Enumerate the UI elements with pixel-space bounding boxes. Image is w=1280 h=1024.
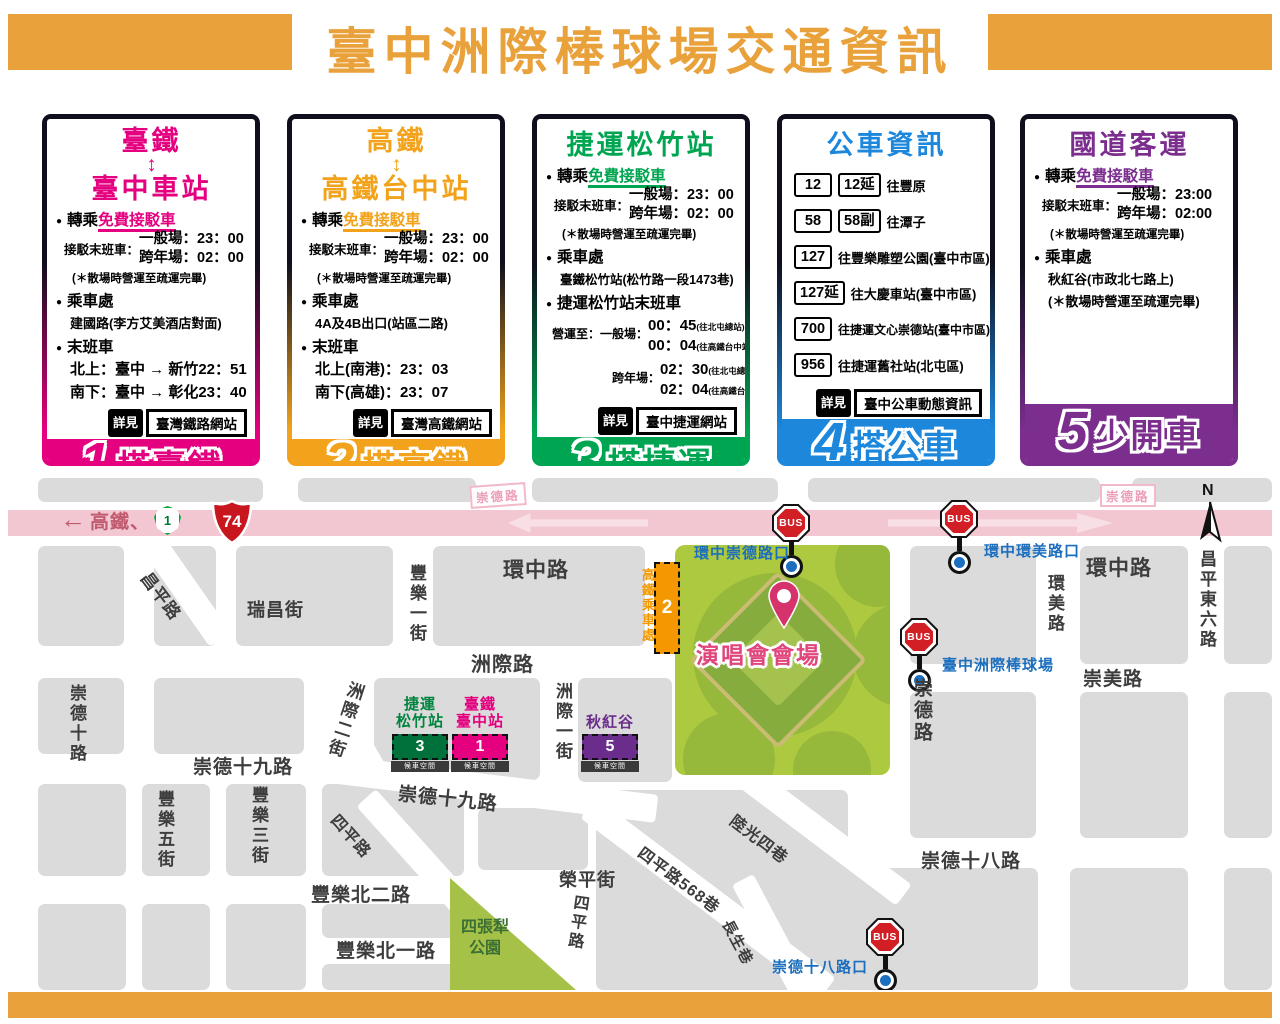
route-badge: 12延 — [838, 173, 881, 197]
boarding-location: 秋紅谷(市政北七路上) — [1048, 269, 1225, 288]
card-hsr: 高鐵 ↕ 高鐵台中站 ● 轉乘免費接駁車 接駁末班車： 一般場：23：00跨年場… — [287, 114, 505, 466]
transfer-bullet: ● 轉乘免費接駁車 — [546, 168, 737, 185]
card-title: 公車資訊 — [791, 130, 982, 161]
see-site: 臺灣鐵路網站 — [146, 409, 247, 437]
shuttle-point-mrt: 捷運松竹站 3 候車空間 — [390, 696, 450, 772]
see-site: 臺中捷運網站 — [636, 407, 737, 435]
see-tag: 詳見 — [108, 409, 143, 437]
shuttle-schedule: 接駁末班車： 一般場：23：00跨年場：02：00 — [554, 186, 737, 224]
shuttle-schedule: 接駁末班車： 一般場：23：00跨年場：02：00 — [309, 230, 492, 268]
card-tra: 臺鐵 ↕ 臺中車站 ● 轉乘免費接駁車 接駁末班車： 一般場：23：00跨年場：… — [42, 114, 260, 466]
street-label: 崇美路 — [1083, 664, 1143, 691]
card-subtitle: 高鐵台中站 — [301, 174, 492, 205]
dispersal-note: (＊散場時營運至疏運完畢) — [562, 226, 737, 242]
route-badge: 127 — [794, 245, 832, 269]
venue-label: 演唱會會場 — [696, 636, 821, 670]
train-north: 北上：臺中 → 新竹22：51 — [70, 358, 247, 379]
train-north: 北上(南港)：23：03 — [315, 358, 492, 379]
expressway-74-shield-icon: 74 — [210, 498, 254, 548]
route-dest: 往大慶車站(臺中市區) — [851, 284, 977, 303]
route-badge: 12 — [794, 173, 832, 197]
left-arrow-icon: ← — [60, 506, 86, 532]
boarding-location: 4A及4B出口(站區二路) — [315, 313, 492, 332]
street-label: 崇德十八路 — [921, 846, 1021, 873]
area-map: ← 高鐵、 1 74 崇德路 崇德路 N 演唱會會場 — [8, 478, 1272, 990]
step-number: 2 — [324, 435, 354, 461]
boarding-location: 建國路(李方艾美酒店對面) — [70, 313, 247, 332]
route-dest: 往豐原 — [887, 176, 926, 195]
footer-bar — [8, 992, 1272, 1018]
step-slogan: 少開車 — [1096, 409, 1201, 457]
card-title: 捷運松竹站 — [546, 130, 737, 161]
last-train-bullet: ●捷運松竹站末班車 — [546, 295, 737, 312]
street-label: 瑞昌街 — [247, 596, 304, 622]
dispersal-note: (＊散場時營運至疏運完畢) — [1050, 226, 1225, 242]
street-label: 環美路 — [1042, 574, 1067, 634]
transfer-bullet: ● 轉乘免費接駁車 — [1034, 168, 1225, 185]
svg-text:74: 74 — [223, 512, 242, 531]
updown-arrow-icon: ↕ — [301, 157, 492, 174]
free-shuttle-label: 免費接駁車 — [98, 212, 176, 232]
header-bar-left — [8, 14, 292, 70]
shuttle-schedule: 接駁末班車： 一般場：23:00跨年場：02:00 — [1042, 186, 1225, 224]
street-label: 豐樂五街 — [152, 790, 177, 870]
stadium-circle — [793, 731, 871, 775]
route-dest: 往潭子 — [887, 212, 926, 231]
street-label: 榮平街 — [559, 866, 616, 892]
transfer-bullet: ● 轉乘免費接駁車 — [56, 212, 247, 229]
hsr-direction-legend: ← 高鐵、 1 — [60, 506, 181, 535]
route-dest: 往捷運文心崇德站(臺中市區) — [838, 321, 990, 338]
road-tag: 崇德路 — [1100, 484, 1156, 507]
free-shuttle-label: 免費接駁車 — [588, 168, 666, 188]
bus-route: 700 往捷運文心崇德站(臺中市區) — [794, 317, 982, 341]
card-mrt: 捷運松竹站 ● 轉乘免費接駁車 接駁末班車： 一般場：23：00跨年場：02：0… — [532, 114, 750, 466]
shuttle-point-number: 1 — [452, 734, 508, 760]
shuttle-point-tra: 臺鐵臺中站 1 候車空間 — [450, 696, 510, 772]
boarding-bullet: ●乘車處 — [301, 293, 492, 310]
boarding-bullet: ●乘車處 — [56, 293, 247, 310]
route-dest: 往豐樂雕塑公園(臺中市區) — [838, 248, 990, 267]
hsr-boarding-badge: 2 — [654, 562, 680, 654]
bus-stop-icon: BUS — [940, 500, 978, 574]
card-bus: 公車資訊 12 12延 往豐原 58 58副 往潭子 127 往豐樂雕塑公園(臺… — [777, 114, 995, 466]
card-coach: 國道客運 ● 轉乘免費接駁車 接駁末班車： 一般場：23:00跨年場：02:00… — [1020, 114, 1238, 466]
street-label: 崇德十九路 — [193, 752, 293, 779]
mrt-operating-newyear: 跨年場： 02：30(往北屯總站) 02：04(往高鐵台中站) — [612, 360, 737, 400]
see-tag: 詳見 — [598, 407, 633, 435]
route-badge: 956 — [794, 353, 832, 377]
boarding-bullet: ●乘車處 — [1034, 249, 1225, 266]
street-label: 洲際一街 — [550, 682, 575, 762]
bus-stop-label: 臺中洲際棒球場 — [942, 654, 1054, 675]
street-label: 豐樂一街 — [404, 564, 429, 644]
bus-stop-label: 崇德十八路口 — [772, 956, 868, 977]
step-number: 1 — [79, 435, 109, 461]
free-shuttle-label: 免費接駁車 — [1076, 168, 1154, 188]
road-tag: 崇德路 — [469, 482, 526, 509]
park-label: 四張犁公園 — [452, 918, 518, 960]
waiting-strip: 候車空間 — [581, 761, 639, 772]
compass-needle-icon — [1196, 498, 1224, 544]
boarding-location: 臺鐵松竹站(松竹路一段1473巷) — [560, 269, 737, 288]
header-bar-right — [988, 14, 1272, 70]
shuttle-point-number: 3 — [392, 734, 448, 760]
card-banner: 3 搭捷運 — [537, 437, 745, 461]
bus-stop-icon: BUS — [772, 504, 810, 578]
step-number: 4 — [814, 415, 844, 461]
waiting-strip: 候車空間 — [391, 761, 449, 772]
street-label: 豐樂三街 — [246, 786, 271, 866]
step-slogan: 搭公車 — [853, 420, 958, 461]
bus-route: 956 往捷運舊社站(北屯區) — [794, 353, 982, 377]
dispersal-note-2: (＊散場時營運至疏運完畢) — [1048, 291, 1225, 310]
street-label: 崇德十路 — [64, 684, 89, 764]
bus-stop-label: 環中環美路口 — [984, 540, 1080, 561]
route-badge: 700 — [794, 317, 832, 341]
route-badge: 58 — [794, 209, 832, 233]
dispersal-note: (＊散場時營運至疏運完畢) — [72, 270, 247, 286]
venue-pin-icon — [766, 580, 802, 630]
bus-route: 127延 往大慶車站(臺中市區) — [794, 281, 982, 305]
bus-stop-icon: BUS — [866, 918, 904, 990]
free-shuttle-label: 免費接駁車 — [343, 212, 421, 232]
page-title: 臺中洲際棒球場交通資訊 — [296, 12, 984, 84]
provincial-highway-1-shield-icon: 1 — [154, 506, 181, 535]
see-tag: 詳見 — [353, 409, 388, 437]
bus-route: 58 58副 往潭子 — [794, 209, 982, 233]
shuttle-point-coach: 秋紅谷 5 候車空間 — [580, 714, 640, 772]
street-label: 崇德路 — [908, 678, 935, 744]
street-label: 環中路 — [503, 554, 569, 584]
street-label: 洲際路 — [471, 648, 534, 677]
card-banner: 5 少開車 — [1025, 404, 1233, 461]
see-site: 臺灣高鐵網站 — [391, 409, 492, 437]
transfer-bullet: ● 轉乘免費接駁車 — [301, 212, 492, 229]
route-badge: 58副 — [838, 209, 881, 233]
card-banner: 4 搭公車 — [782, 419, 990, 461]
last-train-bullet: ●末班車 — [56, 339, 247, 356]
waiting-strip: 候車空間 — [451, 761, 509, 772]
updown-arrow-icon: ↕ — [56, 157, 247, 174]
step-slogan: 搭捷運 — [608, 438, 713, 461]
last-train-bullet: ●末班車 — [301, 339, 492, 356]
card-title: 國道客運 — [1034, 130, 1225, 161]
boarding-bullet: ●乘車處 — [546, 249, 737, 266]
step-number: 5 — [1057, 404, 1087, 458]
shuttle-schedule: 接駁末班車： 一般場：23：00跨年場：02：00 — [64, 230, 247, 268]
see-site: 臺中公車動態資訊 — [854, 389, 982, 417]
dispersal-note: (＊散場時營運至疏運完畢) — [317, 270, 492, 286]
shuttle-point-number: 5 — [582, 734, 638, 760]
street-label: 環中路 — [1086, 552, 1152, 582]
card-banner: 1 搭臺鐵 — [47, 439, 255, 461]
train-south: 南下(高雄)：23：07 — [315, 381, 492, 402]
card-subtitle: 臺中車站 — [56, 174, 247, 205]
train-south: 南下：臺中 → 彰化23：40 — [70, 381, 247, 402]
route-badge: 127延 — [794, 281, 845, 305]
transport-info-poster: 臺中洲際棒球場交通資訊 臺鐵 ↕ 臺中車站 ● 轉乘免費接駁車 接駁末班車： 一… — [0, 0, 1280, 1024]
street-label: 昌平東六路 — [1194, 550, 1219, 650]
card-banner: 2 搭高鐵 — [292, 439, 500, 461]
step-number: 3 — [569, 433, 599, 461]
street-label: 豐樂北一路 — [336, 936, 436, 963]
bus-route: 12 12延 往豐原 — [794, 173, 982, 197]
bus-route: 127 往豐樂雕塑公園(臺中市區) — [794, 245, 982, 269]
step-slogan: 搭高鐵 — [363, 440, 468, 461]
stadium-circle — [835, 545, 890, 607]
mrt-operating-general: 營運至：一般場： 00：45(往北屯總站) 00：04(往高鐵台中站) — [552, 316, 737, 356]
bus-stop-label: 環中崇德路口 — [694, 542, 790, 563]
route-dest: 往捷運舊社站(北屯區) — [838, 356, 964, 375]
street-label: 豐樂北二路 — [311, 880, 411, 907]
step-slogan: 搭臺鐵 — [118, 440, 223, 461]
